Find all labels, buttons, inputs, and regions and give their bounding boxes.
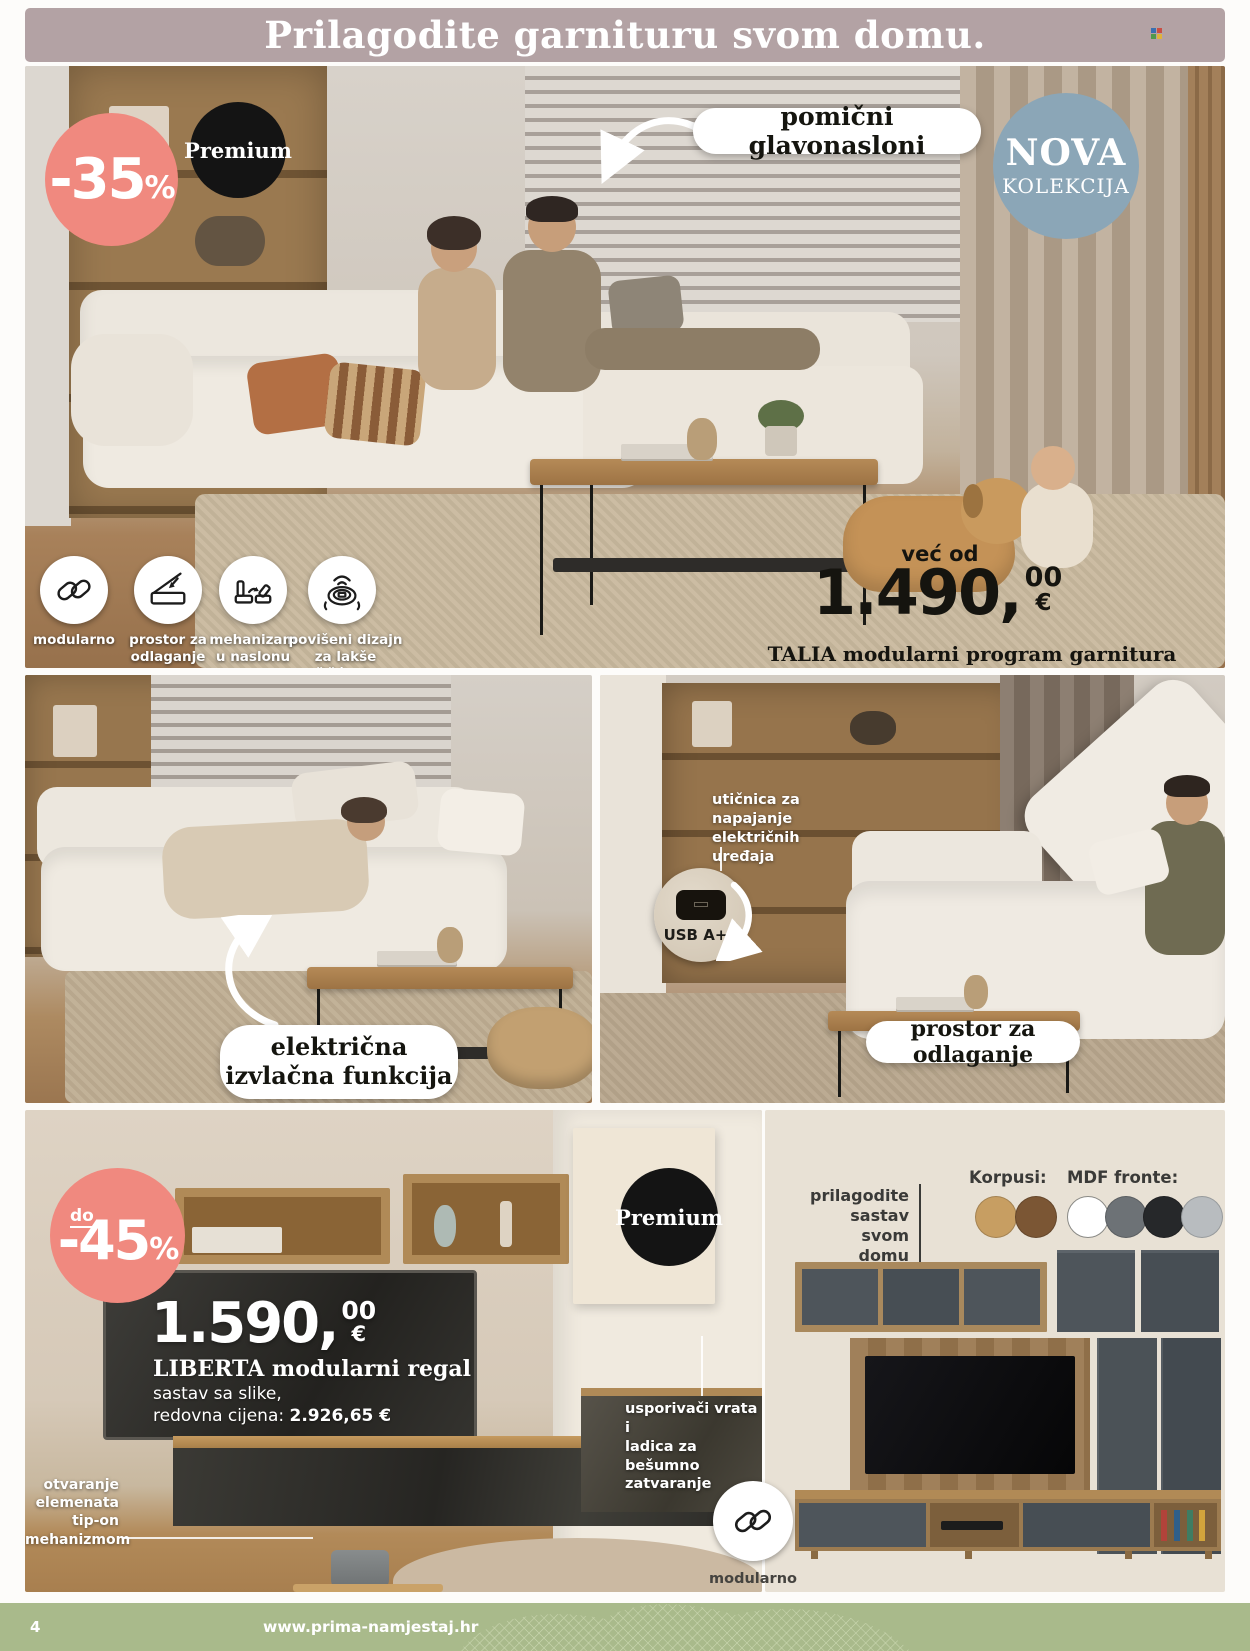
mdf-label: MDF fronte: bbox=[1067, 1168, 1178, 1189]
percent-sign: % bbox=[145, 170, 174, 206]
book-shelf bbox=[1154, 1503, 1217, 1547]
price-currency: € bbox=[351, 1323, 366, 1346]
korpusi-label: Korpusi: bbox=[969, 1168, 1047, 1189]
book bbox=[1161, 1510, 1167, 1541]
premium-badge: Premium bbox=[190, 102, 286, 198]
table-vase bbox=[964, 975, 988, 1009]
price-cents: 00 bbox=[1025, 564, 1063, 591]
discount-value: -35% bbox=[49, 152, 173, 208]
curved-arrow-icon bbox=[716, 881, 766, 961]
premium-badge: Premium bbox=[620, 1168, 718, 1266]
pouf bbox=[487, 1007, 592, 1089]
book bbox=[1199, 1510, 1205, 1541]
book bbox=[1187, 1510, 1193, 1541]
drawer-front bbox=[1023, 1503, 1150, 1547]
unit-leg bbox=[811, 1551, 818, 1559]
cabinet-front bbox=[964, 1269, 1040, 1325]
woman-hair bbox=[341, 797, 387, 823]
lowboard-top bbox=[795, 1490, 1221, 1499]
mdf-swatch-black bbox=[1143, 1196, 1185, 1238]
price-currency: € bbox=[1035, 591, 1051, 616]
color-dot bbox=[1151, 28, 1156, 33]
tipon-note: otvaranje elemenata tip-on mehanizmom bbox=[25, 1476, 119, 1549]
print-color-mark-icon bbox=[1151, 28, 1163, 40]
table-vase bbox=[687, 418, 717, 460]
shelf-books bbox=[192, 1227, 282, 1253]
config-line: sastav sa slike, bbox=[153, 1384, 282, 1404]
coffee-table-top bbox=[307, 967, 573, 989]
man-hair bbox=[1164, 775, 1210, 797]
socket-note: utičnica za napajanje električnih uređaj… bbox=[712, 791, 822, 866]
price-amount: 1.590, bbox=[151, 1296, 337, 1352]
page-title: Prilagodite garnituru svom domu. bbox=[25, 8, 1225, 62]
shelf-decor bbox=[53, 705, 97, 757]
man-hair bbox=[526, 196, 578, 222]
korpusi-swatch-walnut bbox=[1015, 1196, 1057, 1238]
regular-price-value: 2.926,65 € bbox=[290, 1406, 392, 1426]
electric-function-pill: električna izvlačna funkcija bbox=[220, 1025, 458, 1099]
table-lower-shelf bbox=[553, 558, 853, 572]
color-dot bbox=[1157, 28, 1162, 33]
feature-circle-raised-design bbox=[308, 556, 376, 624]
cabinet-front bbox=[883, 1269, 959, 1325]
wall-shelf-box bbox=[403, 1174, 569, 1264]
baby-head bbox=[1031, 446, 1075, 490]
crochet-pattern-decoration bbox=[440, 1603, 960, 1651]
cabinet-front bbox=[802, 1269, 878, 1325]
drawer-front bbox=[799, 1503, 926, 1547]
middle-right-photo: utičnica za napajanje električnih uređaj… bbox=[600, 675, 1225, 1103]
curved-arrow-icon bbox=[203, 915, 313, 1030]
white-pillow bbox=[436, 787, 525, 856]
table-vase bbox=[437, 927, 463, 963]
tv-screen bbox=[865, 1356, 1075, 1474]
regular-price-label: redovna cijena: bbox=[153, 1406, 290, 1426]
new-collection-badge: NOVA KOLEKCIJA bbox=[993, 93, 1139, 239]
discount-badge: -35% bbox=[45, 113, 178, 246]
shelf-vase bbox=[500, 1201, 512, 1247]
bottom-price: 1.590, 00 € bbox=[151, 1296, 376, 1352]
header-band: Prilagodite garnituru svom domu. bbox=[25, 8, 1225, 62]
wall-shelf-box bbox=[175, 1188, 390, 1264]
table-books bbox=[896, 997, 974, 1010]
book bbox=[1174, 1510, 1180, 1541]
nova-line: NOVA bbox=[1006, 134, 1127, 174]
modular-circle bbox=[713, 1481, 793, 1561]
shelf-decor bbox=[692, 701, 732, 747]
modular-label: modularno bbox=[683, 1570, 823, 1588]
price-amount: 1.490, bbox=[813, 562, 1021, 624]
regular-price-line: redovna cijena: 2.926,65 € bbox=[153, 1406, 391, 1426]
upper-cabinet-box bbox=[1141, 1250, 1219, 1332]
page-number: 4 bbox=[30, 1603, 40, 1651]
shelf-vase bbox=[434, 1205, 456, 1247]
customize-note: prilagodite sastav svom domu bbox=[801, 1186, 909, 1266]
korpusi-swatch-light-oak bbox=[975, 1196, 1017, 1238]
sofa-armrest bbox=[71, 334, 193, 446]
plant-pot bbox=[765, 426, 797, 456]
shelf-decor bbox=[850, 711, 896, 745]
middle-left-photo: električna izvlačna funkcija bbox=[25, 675, 592, 1103]
woman-hair bbox=[427, 216, 481, 250]
shelf-decor bbox=[195, 216, 265, 266]
lowboard-body bbox=[795, 1499, 1221, 1551]
seat-mechanism-icon bbox=[230, 567, 276, 613]
unit-leg bbox=[1205, 1551, 1212, 1559]
table-leg bbox=[590, 485, 593, 605]
curved-arrow-icon bbox=[597, 112, 702, 188]
mdf-swatch-white bbox=[1067, 1196, 1109, 1238]
feature-label: povišeni dizajn za lakše čišćenje bbox=[283, 632, 408, 668]
man-figure bbox=[503, 250, 601, 392]
blanket bbox=[161, 818, 371, 921]
percent-sign: % bbox=[149, 1232, 177, 1267]
feature-circle-mechanism bbox=[219, 556, 287, 624]
discount-prefix: do bbox=[70, 1206, 94, 1228]
hero-price: 1.490, 00 € bbox=[813, 562, 1062, 624]
coffee-table-top bbox=[530, 459, 878, 485]
feature-circle-modular bbox=[40, 556, 108, 624]
pillow-striped bbox=[323, 361, 426, 447]
mdf-swatch-grey bbox=[1105, 1196, 1147, 1238]
storage-callout-pill: prostor za odlaganje bbox=[866, 1021, 1080, 1063]
color-dot bbox=[1157, 34, 1162, 39]
tipon-line bbox=[123, 1537, 313, 1539]
headrest-callout-pill: pomični glavonasloni bbox=[693, 108, 981, 154]
upper-cabinet-row bbox=[795, 1262, 1047, 1332]
bottom-left-photo: do -45% Premium 1.590, 00 € LIBERTA modu… bbox=[25, 1110, 762, 1592]
woman-figure bbox=[418, 268, 496, 390]
feature-circle-storage bbox=[134, 556, 202, 624]
table-leg bbox=[540, 485, 543, 635]
bottom-right-panel: prilagodite sastav svom domu Korpusi: MD… bbox=[765, 1110, 1225, 1592]
price-cents: 00 bbox=[341, 1298, 376, 1323]
kolekcija-line: KOLEKCIJA bbox=[1002, 174, 1130, 198]
hero-photo: -35% Premium pomični glavonasloni NOVA K… bbox=[25, 66, 1225, 668]
color-dot bbox=[1151, 34, 1156, 39]
mdf-swatch-light-grey bbox=[1181, 1196, 1223, 1238]
chain-link-icon bbox=[51, 567, 97, 613]
robot-vacuum-icon bbox=[319, 567, 365, 613]
dog-ear bbox=[963, 484, 983, 518]
callout-line bbox=[720, 847, 722, 871]
media-device bbox=[941, 1521, 1003, 1530]
open-shelf bbox=[930, 1503, 1019, 1547]
softclose-line bbox=[701, 1336, 703, 1396]
unit-leg bbox=[965, 1551, 972, 1559]
softclose-note: usporivači vrata i ladica za bešumno zat… bbox=[625, 1400, 759, 1494]
bottom-product-name: LIBERTA modularni regal bbox=[153, 1356, 471, 1382]
upper-cabinet-box bbox=[1057, 1250, 1135, 1332]
cup-board bbox=[293, 1584, 443, 1592]
man-legs bbox=[585, 328, 820, 370]
hero-product-name: TALIA modularni program garnitura bbox=[767, 642, 1177, 666]
discount-badge: do -45% bbox=[50, 1168, 185, 1303]
footer-band: 4 www.prima-namjestaj.hr bbox=[0, 1603, 1250, 1651]
storage-open-icon bbox=[145, 567, 191, 613]
unit-leg bbox=[1125, 1551, 1132, 1559]
chain-link-icon bbox=[728, 1496, 778, 1546]
table-leg bbox=[838, 1031, 841, 1097]
